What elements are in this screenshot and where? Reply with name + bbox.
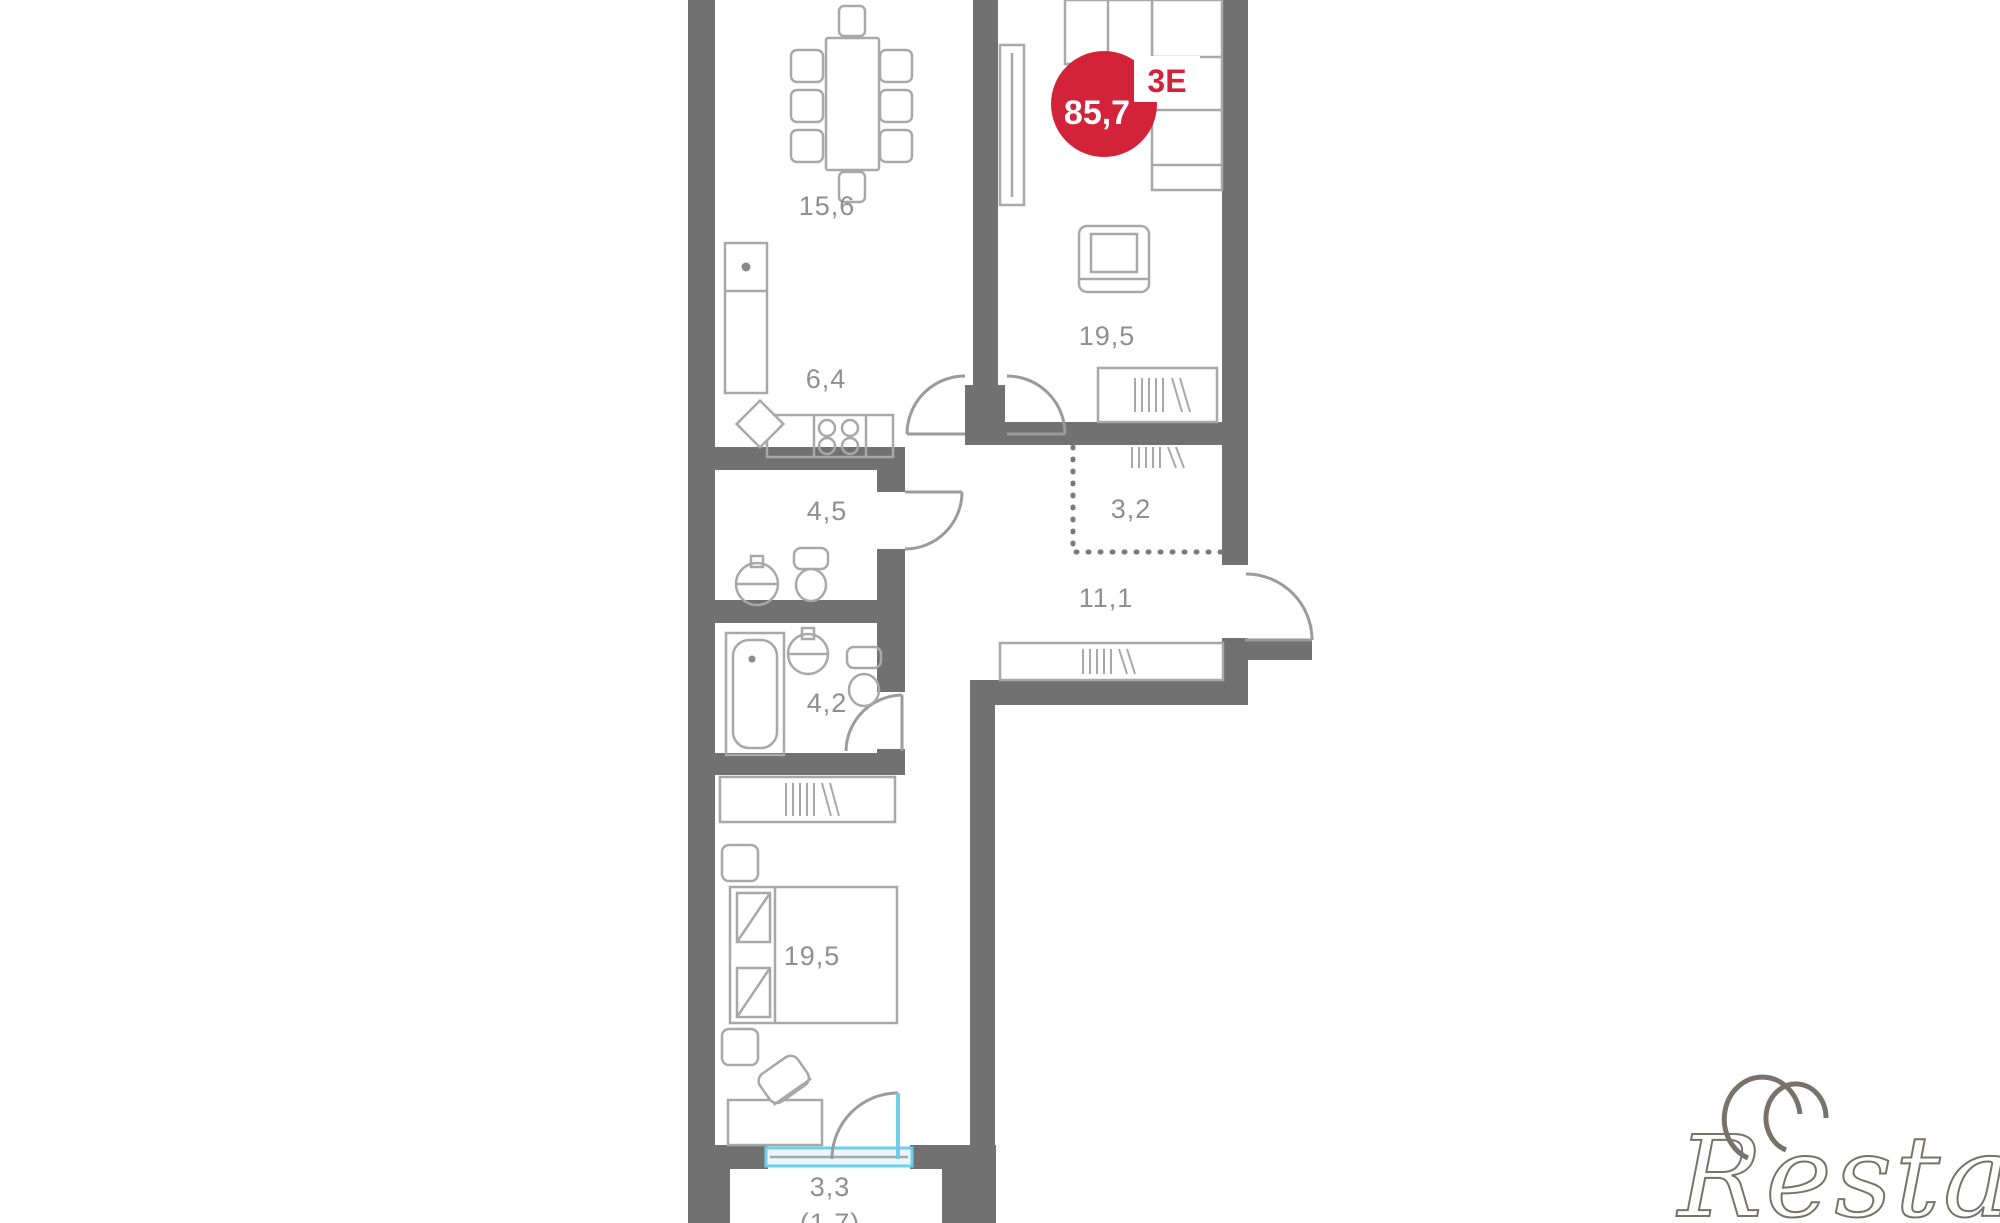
hallway-closet bbox=[1000, 643, 1223, 680]
watermark-text: Restate bbox=[1676, 1113, 2000, 1223]
badge-total-area: 85,7 bbox=[1064, 94, 1130, 132]
room-label-bathroom-upper: 4,5 bbox=[807, 496, 848, 526]
room-label-bedroom: 19,5 bbox=[784, 941, 841, 971]
room-label-hallway: 11,1 bbox=[1079, 583, 1134, 613]
kitchen-door-arc bbox=[907, 376, 965, 434]
kitchen-cabinet bbox=[725, 243, 767, 393]
living-wardrobe bbox=[1098, 368, 1217, 422]
bathroom-upper-door-arc bbox=[905, 492, 962, 549]
armchair bbox=[1079, 226, 1149, 292]
bathroom-sink bbox=[736, 556, 778, 605]
dining-table bbox=[791, 6, 912, 202]
nightstand bbox=[722, 845, 758, 881]
room-label-balcony-coefficient: (1,7) bbox=[800, 1208, 861, 1223]
dining-chair bbox=[880, 90, 912, 122]
floor-plan: 15,6 6,4 19,5 4,5 3,2 11,1 4,2 19,5 3,3 … bbox=[688, 0, 1312, 1223]
watermark: Restate bbox=[1676, 1077, 2000, 1223]
dining-chair bbox=[791, 130, 823, 162]
room-labels: 15,6 6,4 19,5 4,5 3,2 11,1 4,2 19,5 3,3 … bbox=[784, 191, 1152, 1223]
bedroom-wardrobe bbox=[720, 777, 895, 822]
dining-chair bbox=[791, 50, 823, 82]
badge-type-label: 3Е bbox=[1147, 63, 1186, 99]
kitchen-sink bbox=[737, 401, 784, 448]
entrance-door-arc bbox=[1245, 574, 1312, 640]
room-label-balcony: 3,3 bbox=[810, 1172, 851, 1202]
room-label-kitchen: 6,4 bbox=[806, 364, 847, 394]
dining-chair bbox=[880, 130, 912, 162]
toilet bbox=[794, 548, 828, 601]
desk-chair bbox=[755, 1052, 812, 1106]
closet-wardrobe-hatch bbox=[1132, 447, 1184, 468]
dining-stool bbox=[839, 6, 865, 36]
room-label-dining: 15,6 bbox=[799, 191, 856, 221]
desk bbox=[728, 1100, 822, 1145]
window-partition bbox=[1000, 45, 1024, 205]
bathroom-sink bbox=[788, 628, 828, 674]
bathtub bbox=[726, 633, 784, 755]
room-label-bathroom-lower: 4,2 bbox=[807, 688, 848, 718]
room-label-closet: 3,2 bbox=[1111, 494, 1152, 524]
dining-chair bbox=[880, 50, 912, 82]
toilet bbox=[847, 647, 881, 706]
dining-chair bbox=[791, 90, 823, 122]
room-label-living: 19,5 bbox=[1079, 321, 1136, 351]
nightstand bbox=[722, 1029, 758, 1065]
